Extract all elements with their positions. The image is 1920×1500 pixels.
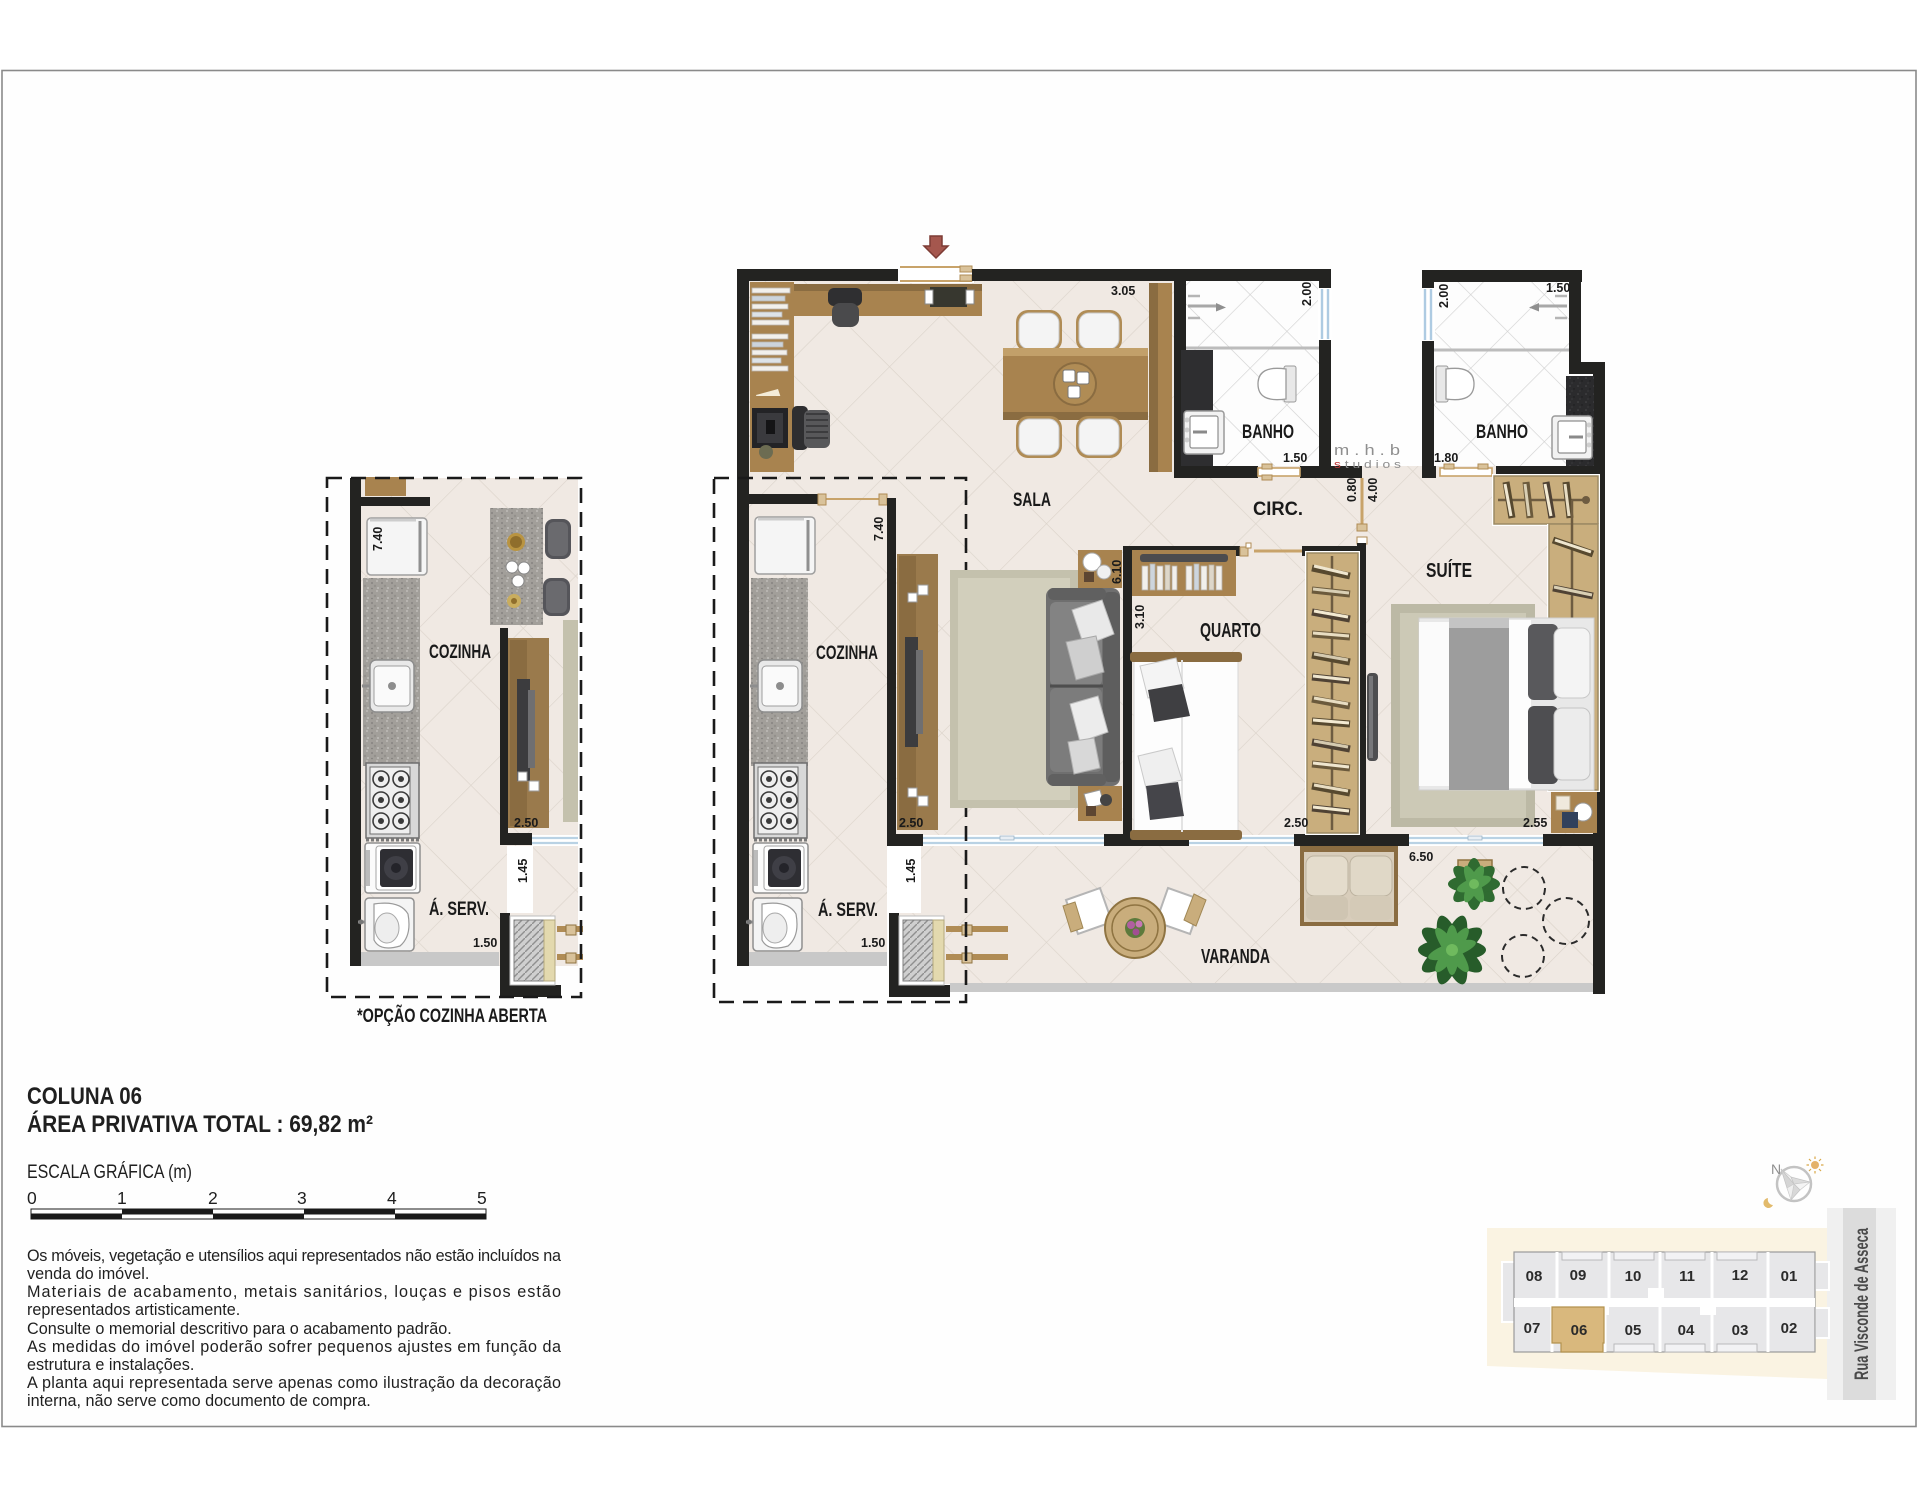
svg-text:10: 10 xyxy=(1625,1268,1642,1285)
svg-text:7.40: 7.40 xyxy=(872,517,886,541)
svg-text:01: 01 xyxy=(1781,1268,1798,1285)
svg-text:4.00: 4.00 xyxy=(1366,478,1380,502)
svg-text:2.55: 2.55 xyxy=(1523,816,1547,830)
svg-text:Consulte o memorial descritivo: Consulte o memorial descritivo para o ac… xyxy=(27,1320,452,1338)
svg-text:2.00: 2.00 xyxy=(1300,282,1314,306)
svg-text:s t u d i o s: s t u d i o s xyxy=(1334,459,1402,471)
svg-text:1.50: 1.50 xyxy=(1283,451,1307,465)
svg-text:09: 09 xyxy=(1570,1267,1587,1284)
svg-text:COZINHA: COZINHA xyxy=(816,643,878,664)
svg-text:2.50: 2.50 xyxy=(514,816,538,830)
svg-text:07: 07 xyxy=(1524,1320,1541,1337)
svg-text:estrutura e instalações.: estrutura e instalações. xyxy=(27,1356,194,1374)
svg-text:0.80: 0.80 xyxy=(1345,478,1359,502)
svg-text:11: 11 xyxy=(1679,1268,1695,1285)
svg-text:05: 05 xyxy=(1625,1322,1642,1339)
svg-text:VARANDA: VARANDA xyxy=(1201,946,1270,968)
svg-text:Á. SERV.: Á. SERV. xyxy=(429,898,489,920)
svg-text:6.10: 6.10 xyxy=(1110,560,1124,584)
svg-text:COZINHA: COZINHA xyxy=(429,642,491,663)
svg-text:3.10: 3.10 xyxy=(1133,605,1147,629)
svg-text:2.50: 2.50 xyxy=(899,816,923,830)
svg-text:interna, não serve como docume: interna, não serve como documento de com… xyxy=(27,1392,371,1410)
svg-text:SALA: SALA xyxy=(1013,490,1051,511)
svg-text:7.40: 7.40 xyxy=(371,527,385,551)
svg-text:COLUNA 06: COLUNA 06 xyxy=(27,1083,142,1110)
svg-text:m . h . b: m . h . b xyxy=(1334,442,1400,459)
svg-text:ESCALA GRÁFICA (m): ESCALA GRÁFICA (m) xyxy=(27,1160,192,1183)
svg-text:2.00: 2.00 xyxy=(1437,284,1451,308)
svg-text:03: 03 xyxy=(1732,1322,1749,1339)
svg-text:12: 12 xyxy=(1732,1267,1749,1284)
svg-text:Rua Visconde de Asseca: Rua Visconde de Asseca xyxy=(1852,1228,1873,1380)
svg-text:06: 06 xyxy=(1571,1322,1588,1339)
svg-text:1.50: 1.50 xyxy=(1546,281,1570,295)
svg-text:ÁREA PRIVATIVA TOTAL : 69,82: ÁREA PRIVATIVA TOTAL : 69,82 m² xyxy=(27,1110,373,1138)
svg-text:04: 04 xyxy=(1678,1322,1695,1339)
svg-text:venda do imóvel.: venda do imóvel. xyxy=(27,1265,149,1283)
svg-text:0: 0 xyxy=(27,1188,37,1208)
svg-text:As medidas do imóvel poderão s: As medidas do imóvel poderão sofrer pequ… xyxy=(27,1338,561,1356)
svg-text:representados artisticamente.: representados artisticamente. xyxy=(27,1301,240,1319)
svg-text:02: 02 xyxy=(1781,1320,1798,1337)
svg-text:1.50: 1.50 xyxy=(473,936,497,950)
svg-text:BANHO: BANHO xyxy=(1476,422,1528,443)
svg-text:SUÍTE: SUÍTE xyxy=(1426,559,1472,582)
svg-text:1.50: 1.50 xyxy=(861,936,885,950)
svg-text:2: 2 xyxy=(208,1188,218,1208)
svg-text:08: 08 xyxy=(1526,1268,1543,1285)
svg-text:2.50: 2.50 xyxy=(1284,816,1308,830)
svg-text:6.50: 6.50 xyxy=(1409,850,1433,864)
svg-text:N: N xyxy=(1771,1161,1781,1177)
svg-text:3.05: 3.05 xyxy=(1111,284,1135,298)
svg-text:A planta aqui representada ser: A planta aqui representada serve apenas … xyxy=(27,1374,561,1392)
svg-text:BANHO: BANHO xyxy=(1242,422,1294,443)
svg-text:1: 1 xyxy=(117,1188,127,1208)
svg-text:3: 3 xyxy=(297,1188,307,1208)
svg-text:Materiais de acabamento, metai: Materiais de acabamento, metais sanitári… xyxy=(27,1283,561,1301)
svg-text:CIRC.: CIRC. xyxy=(1253,499,1303,520)
svg-text:Os móveis, vegetação e utensíl: Os móveis, vegetação e utensílios aqui r… xyxy=(27,1247,561,1265)
svg-text:4: 4 xyxy=(387,1188,397,1208)
svg-text:5: 5 xyxy=(477,1188,487,1208)
svg-text:Á. SERV.: Á. SERV. xyxy=(818,899,878,921)
svg-text:1.80: 1.80 xyxy=(1434,451,1458,465)
svg-text:1.45: 1.45 xyxy=(516,859,530,883)
svg-text:*OPÇÃO COZINHA ABERTA: *OPÇÃO COZINHA ABERTA xyxy=(357,1005,547,1027)
svg-text:1.45: 1.45 xyxy=(904,859,918,883)
svg-text:QUARTO: QUARTO xyxy=(1200,620,1261,642)
